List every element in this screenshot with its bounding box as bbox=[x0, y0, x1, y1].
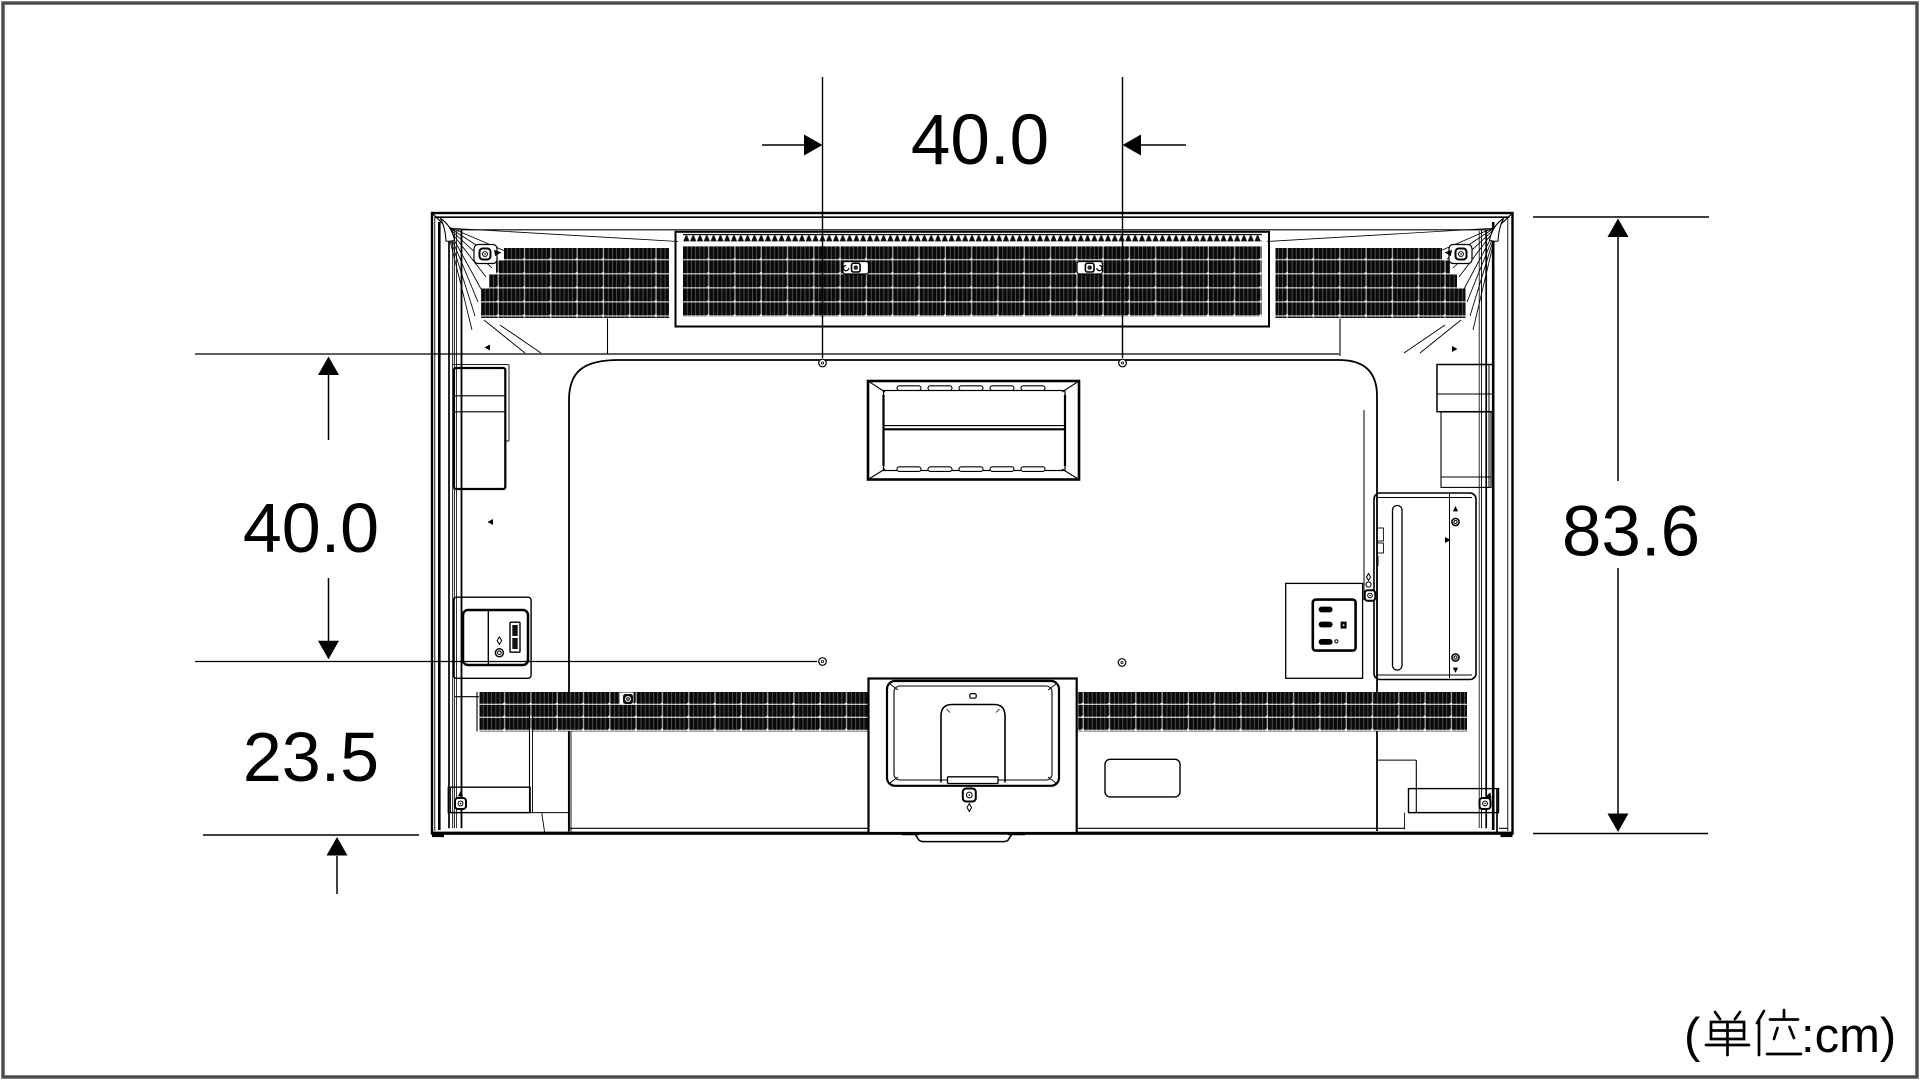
svg-text::cm): :cm) bbox=[1801, 1009, 1896, 1063]
svg-text:(: ( bbox=[1684, 1009, 1701, 1063]
svg-text:40.0: 40.0 bbox=[911, 101, 1049, 180]
svg-text:40.0: 40.0 bbox=[243, 489, 379, 567]
svg-text:23.5: 23.5 bbox=[243, 718, 379, 796]
svg-text:83.6: 83.6 bbox=[1562, 493, 1700, 572]
